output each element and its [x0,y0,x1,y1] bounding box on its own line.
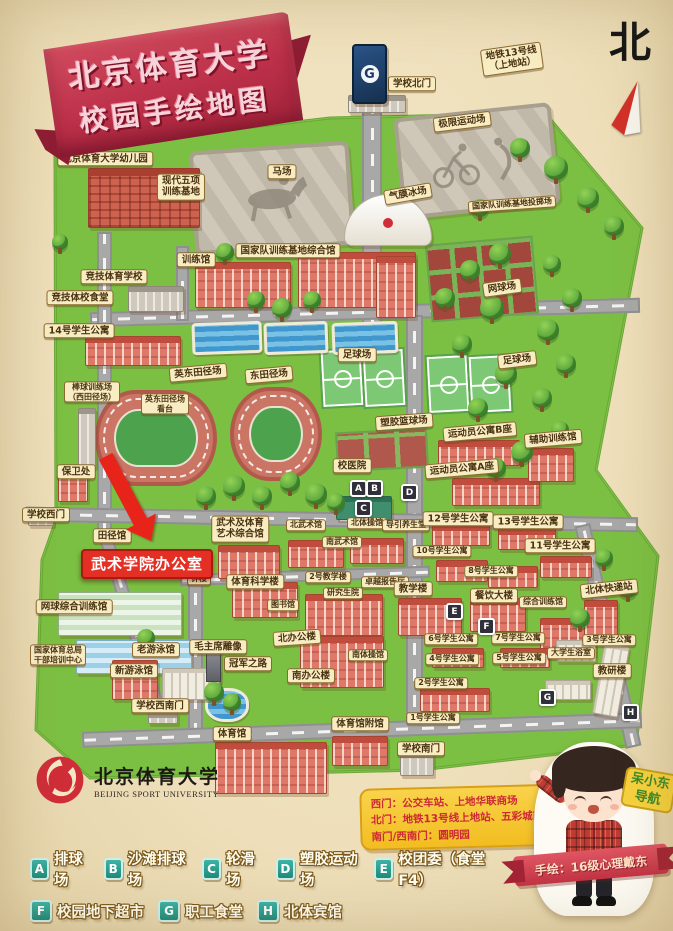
map-label: 训练馆 [177,252,216,267]
building [432,524,490,546]
map-label: 餐饮大楼 [470,588,518,603]
tree [280,472,300,492]
legend-label: 职工食堂 [185,901,243,922]
map-label: 棒球训练场 （西田径场） [64,381,120,402]
legend-label: 校园地下超市 [57,901,144,922]
tree [452,334,472,354]
map-label: 大学生浴室 [547,647,595,659]
character-hair [552,772,566,798]
map-label: 网球综合训练馆 [36,599,113,614]
tree [577,187,599,209]
map-label: 8号学生公寓 [464,565,518,577]
tree [216,243,234,261]
character-shoe [596,896,616,906]
map-label: 保卫处 [57,464,96,479]
map-label: 校医院 [333,458,372,473]
tree [460,260,480,280]
equestrian-field [189,141,356,256]
map-label: 12号学生公寓 [423,511,494,526]
character-hand [530,770,541,781]
map-label: 马场 [267,164,296,179]
building [376,256,416,318]
swimming-pool [263,321,328,355]
swimming-pool [191,321,262,355]
map-label: 7号学生公寓 [491,632,545,644]
tree [327,493,345,511]
map-label: 国家队训练基地综合馆 [235,243,340,258]
legend-letter-badge: A [30,858,49,880]
map-label: 老游泳馆 [132,642,180,657]
legend-letter-badge: B [104,858,123,880]
map-marker-d: D [401,484,418,501]
character-blush [568,804,577,810]
tree [52,234,68,250]
legend-label: 塑胶运动场 [300,848,360,890]
character-eye [600,796,612,804]
tree [543,255,561,273]
legend-item: H北体宾馆 [257,900,342,922]
tree [303,291,321,309]
tree [305,483,327,505]
map-label: 学校西门 [22,507,70,522]
map-marker-e: E [446,603,463,620]
building [528,448,574,482]
map-label: 竞技体育学校 [80,269,147,284]
map-label: 南体操馆 [348,649,388,661]
map-label: 武术及体育 艺术综合馆 [211,516,269,543]
legend-row: A排球场B沙滩排球场C轮滑场D塑胶运动场E校团委（食堂F4） [30,848,500,890]
tree [544,156,568,180]
building [452,478,540,506]
building [78,408,96,468]
running-track [230,387,322,481]
map-label: 毛主席雕像 [189,639,247,654]
tree [562,288,582,308]
map-label: 南武术馆 [322,536,362,548]
tree [223,475,245,497]
tree [595,549,613,567]
map-label: 14号学生公寓 [44,323,115,338]
campus-map: 北京体育大学幼儿园现代五项 训练基地马场学校北门地铁13号线 （上地站）极限运动… [0,0,673,931]
map-label: 图书馆 [267,599,299,611]
map-marker-a: A [350,480,367,497]
map-label: 13号学生公寓 [493,514,564,529]
compass-needle-icon [610,77,653,139]
tree [223,693,241,711]
legend-label: 轮滑场 [226,848,262,890]
tree [480,296,504,320]
tree [468,398,488,418]
legend: A排球场B沙滩排球场C轮滑场D塑胶运动场E校团委（食堂F4） F校园地下超市G职… [30,848,500,922]
map-label: 11号学生公寓 [525,538,596,553]
map-marker-f: F [478,618,495,635]
north-character: 北 [602,22,658,64]
legend-letter-badge: E [374,858,393,880]
legend-item: B沙滩排球场 [104,848,188,890]
tree [247,291,265,309]
tree [510,138,530,158]
legend-label: 排球场 [54,848,90,890]
character-eye [574,796,586,804]
building [420,688,490,712]
mascot-character: 呆小东 导航 [522,742,667,927]
map-label: 英东田径场 看台 [141,393,189,414]
building [148,712,178,724]
legend-item: E校团委（食堂F4） [374,848,500,890]
football-pitch [427,355,470,413]
legend-label: 校团委（食堂F4） [398,848,500,890]
legend-item: A排球场 [30,848,90,890]
map-label: 现代五项 训练基地 [157,174,205,201]
map-marker-h: H [622,704,639,721]
map-label: 教研楼 [593,663,632,678]
legend-letter-badge: F [30,900,52,922]
legend-item: G职工食堂 [158,900,243,922]
map-label: 新游泳馆 [110,663,158,678]
map-label: 南办公楼 [287,668,335,683]
building [332,736,388,766]
map-label: 冠军之路 [224,656,272,671]
map-label: 体育馆 [213,726,252,741]
map-label: 足球场 [338,347,377,362]
map-label: 1号学生公寓 [406,712,460,724]
university-logo: 北京体育大学 BEIJING SPORT UNIVERSITY [34,750,234,810]
legend-item: F校园地下超市 [30,900,144,922]
map-label: 北体操馆 [347,517,387,529]
map-label: 2号学生公寓 [414,677,468,689]
map-label: 教学楼 [394,581,433,596]
map-label: 6号学生公寓 [424,633,478,645]
tree [435,288,455,308]
tree [196,486,216,506]
legend-letter-badge: C [202,858,221,880]
map-label: 5号学生公寓 [492,652,546,664]
map-label: 竞技体校食堂 [46,290,113,305]
map-label: 体育科学楼 [226,574,284,589]
legend-letter-badge: H [257,900,279,922]
map-label: 体育馆附馆 [331,716,389,731]
tree [537,319,559,341]
map-label: 研究生院 [323,587,363,599]
wushu-office-highlight-label: 武术学院办公室 [81,549,213,579]
legend-label: 北体宾馆 [284,901,342,922]
building [128,286,184,312]
building [540,556,592,578]
tree [570,608,590,628]
map-label: 学校北门 [388,76,436,91]
metro-station-sign: G [352,44,387,104]
legend-label: 沙滩排球场 [128,848,188,890]
map-label: 综合训练馆 [519,596,567,608]
tree [556,354,576,374]
map-label: 北武术馆 [286,519,326,531]
building [85,336,181,366]
logo-text-en: BEIJING SPORT UNIVERSITY [94,789,220,799]
map-label: 学校南门 [397,741,445,756]
map-marker-b: B [366,480,383,497]
legend-row: F校园地下超市G职工食堂H北体宾馆 [30,900,500,922]
tree [204,682,224,702]
statue [206,650,221,682]
map-label: 2号教学楼 [305,571,351,583]
character-mouth [588,805,599,814]
map-marker-c: C [355,500,372,517]
character-shoe [572,896,592,906]
map-label: 3号学生公寓 [582,634,636,646]
tree [252,486,272,506]
tree [532,388,552,408]
map-label: 10号学生公寓 [412,545,471,557]
north-indicator: 北 [602,22,658,142]
character-blush [610,804,619,810]
map-marker-g: G [539,689,556,706]
map-label: 4号学生公寓 [425,653,479,665]
beijing-subway-logo-icon: G [361,65,379,83]
logo-text-cn: 北京体育大学 [94,762,220,789]
legend-letter-badge: D [276,858,295,880]
legend-item: D塑胶运动场 [276,848,360,890]
map-label: 国家体育总局 干部培训中心 [30,644,86,665]
tree [489,243,511,265]
map-label: 学校西南门 [131,698,189,713]
legend-item: C轮滑场 [202,848,262,890]
credit-text: 手绘：16级心理戴东 [534,852,648,879]
tree [272,298,292,318]
tree [604,216,624,236]
legend-letter-badge: G [158,900,180,922]
logo-swirl-icon [34,754,86,806]
